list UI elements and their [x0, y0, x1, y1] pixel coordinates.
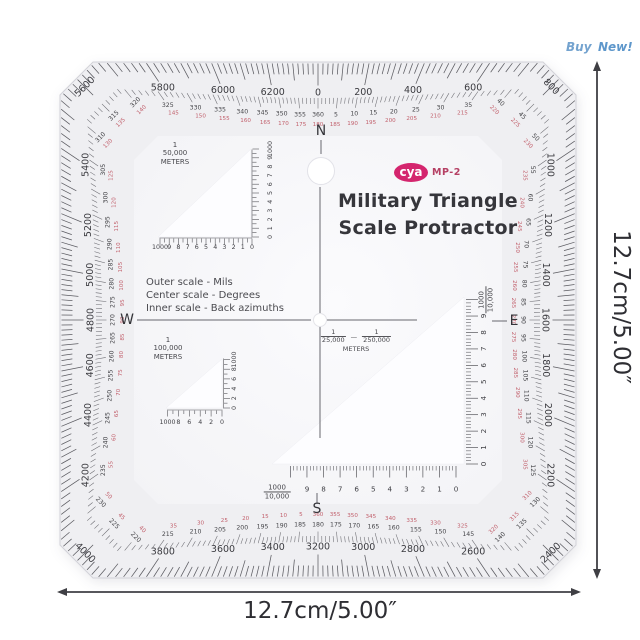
svg-text:2: 2	[231, 396, 238, 400]
svg-text:115: 115	[114, 221, 120, 232]
svg-text:8: 8	[479, 330, 488, 335]
svg-text:125: 125	[109, 170, 115, 181]
svg-text:9: 9	[167, 244, 171, 251]
scale-legend: Outer scale - Mils Center scale - Degree…	[146, 276, 284, 315]
svg-text:155: 155	[410, 526, 422, 533]
svg-text:355: 355	[330, 512, 341, 518]
frac-den: 50,000	[163, 149, 188, 157]
svg-text:4200: 4200	[80, 463, 91, 487]
svg-text:350: 350	[276, 111, 288, 118]
svg-text:5: 5	[371, 485, 376, 494]
svg-text:270: 270	[110, 314, 117, 326]
title-line-1: Military Triangle	[322, 188, 534, 215]
svg-text:100: 100	[119, 280, 125, 291]
svg-text:5200: 5200	[83, 213, 94, 237]
svg-text:75: 75	[521, 261, 528, 269]
svg-text:5800: 5800	[151, 82, 175, 93]
svg-text:340: 340	[385, 516, 396, 522]
center-hole	[314, 314, 327, 327]
svg-text:160: 160	[240, 118, 251, 124]
bottom-dimension-arrow	[57, 588, 581, 596]
svg-text:150: 150	[195, 114, 206, 120]
svg-text:5: 5	[334, 111, 338, 118]
svg-text:6: 6	[267, 182, 274, 186]
svg-text:5: 5	[204, 244, 208, 251]
svg-text:10: 10	[280, 513, 288, 519]
svg-text:2600: 2600	[461, 547, 485, 558]
svg-text:325: 325	[457, 523, 468, 529]
svg-text:65: 65	[114, 410, 120, 418]
svg-text:175: 175	[296, 122, 307, 128]
svg-text:305: 305	[100, 164, 107, 176]
svg-text:210: 210	[190, 529, 202, 536]
svg-text:2: 2	[421, 485, 426, 494]
svg-text:20: 20	[242, 516, 250, 522]
svg-text:185: 185	[294, 522, 306, 529]
svg-text:1200: 1200	[542, 213, 553, 237]
brand-logo: cya	[394, 163, 428, 182]
svg-text:195: 195	[257, 523, 269, 530]
svg-text:360: 360	[312, 112, 324, 119]
new-badge[interactable]: New!	[598, 40, 633, 54]
frac-25k: 1 25,000	[321, 329, 346, 345]
center-scale-label: 1 25,000 — 1 250,000 METERS	[321, 329, 391, 353]
svg-text:1: 1	[241, 244, 245, 251]
svg-text:55: 55	[529, 166, 536, 174]
svg-text:1: 1	[437, 485, 442, 494]
svg-text:1000: 1000	[267, 141, 274, 157]
legend-inner: Inner scale - Back azimuths	[146, 302, 284, 315]
svg-text:210: 210	[430, 114, 441, 120]
svg-text:400: 400	[404, 85, 422, 96]
svg-text:55: 55	[109, 461, 115, 469]
svg-text:2000: 2000	[542, 403, 553, 427]
svg-text:255: 255	[512, 262, 518, 273]
svg-text:345: 345	[365, 514, 376, 520]
svg-text:5400: 5400	[80, 153, 91, 177]
svg-text:235: 235	[100, 464, 107, 476]
svg-text:35: 35	[464, 102, 472, 109]
svg-text:280: 280	[109, 278, 116, 290]
svg-text:25: 25	[221, 518, 229, 524]
svg-text:0: 0	[250, 244, 254, 251]
svg-text:85: 85	[520, 298, 527, 306]
svg-text:240: 240	[102, 436, 109, 448]
svg-text:3: 3	[222, 244, 226, 251]
svg-text:110: 110	[116, 242, 122, 253]
svg-text:355: 355	[294, 111, 306, 118]
svg-text:160: 160	[388, 525, 400, 532]
svg-text:285: 285	[108, 259, 115, 271]
svg-text:200: 200	[354, 87, 372, 98]
svg-text:155: 155	[219, 116, 230, 122]
svg-text:340: 340	[236, 108, 248, 115]
height-dimension-label: 12.7cm/5.00″	[608, 230, 634, 384]
svg-text:250: 250	[514, 242, 520, 253]
svg-text:0: 0	[220, 419, 224, 426]
svg-text:2: 2	[267, 217, 274, 221]
product-photo: 0200400600800100012001400160018002000220…	[0, 0, 640, 640]
svg-text:1000: 1000	[159, 419, 175, 426]
buy-link[interactable]: Buy	[566, 40, 592, 54]
svg-text:75: 75	[118, 369, 124, 377]
svg-text:6: 6	[231, 377, 238, 381]
frac-den: 25,000	[321, 336, 346, 344]
svg-text:1000: 1000	[545, 153, 556, 177]
svg-text:295: 295	[105, 216, 112, 228]
svg-text:0: 0	[479, 461, 488, 466]
svg-text:1600: 1600	[540, 308, 551, 332]
svg-text:260: 260	[511, 280, 517, 291]
svg-text:95: 95	[520, 334, 527, 342]
triangle-100k-label: 1 100,000 METERS	[154, 336, 183, 361]
svg-text:0: 0	[315, 88, 321, 99]
triangle-50k-label: 1 50,000 METERS	[161, 141, 189, 166]
svg-text:290: 290	[106, 238, 113, 250]
center-scale-unit: METERS	[343, 345, 369, 353]
svg-text:7: 7	[338, 485, 343, 494]
svg-text:2: 2	[209, 419, 213, 426]
svg-text:145: 145	[462, 531, 474, 538]
svg-text:6: 6	[479, 363, 488, 368]
svg-text:2: 2	[232, 244, 236, 251]
model-number: MP-2	[432, 167, 461, 178]
svg-text:1000: 1000	[152, 244, 168, 251]
svg-text:3600: 3600	[211, 544, 235, 555]
right-dimension-arrow	[593, 61, 601, 579]
svg-text:60: 60	[112, 433, 118, 441]
svg-text:1800: 1800	[540, 353, 551, 377]
svg-text:275: 275	[109, 296, 116, 308]
svg-text:4: 4	[267, 200, 274, 204]
width-dimension-label: 12.7cm/5.00″	[243, 598, 397, 624]
svg-text:1000: 1000	[231, 351, 238, 367]
svg-text:3: 3	[479, 412, 488, 417]
svg-text:90: 90	[520, 316, 527, 324]
svg-text:105: 105	[118, 261, 124, 272]
svg-text:7: 7	[267, 173, 274, 177]
svg-text:7: 7	[479, 347, 488, 352]
svg-text:4400: 4400	[83, 403, 94, 427]
svg-text:250: 250	[106, 390, 113, 402]
svg-text:0: 0	[231, 406, 238, 410]
svg-text:20: 20	[390, 108, 398, 115]
svg-text:4: 4	[479, 395, 488, 400]
svg-text:600: 600	[464, 82, 482, 93]
svg-text:4: 4	[388, 485, 393, 494]
svg-text:295: 295	[516, 408, 522, 419]
svg-text:115: 115	[524, 412, 531, 424]
svg-text:165: 165	[368, 523, 380, 530]
compass-south: S	[313, 501, 322, 517]
frac-den: 10,000	[486, 287, 495, 314]
triangle-10k-side-label: 1000 10,000	[477, 287, 494, 314]
svg-text:6000: 6000	[211, 85, 235, 96]
protractor-graphic: 0200400600800100012001400160018002000220…	[0, 0, 640, 640]
svg-text:2: 2	[479, 429, 488, 434]
svg-text:120: 120	[112, 197, 118, 208]
triangle-10k-bottom-label: 1000 10,000	[264, 483, 291, 500]
svg-text:10: 10	[350, 111, 358, 118]
svg-text:165: 165	[260, 120, 271, 126]
svg-text:110: 110	[523, 390, 530, 402]
svg-text:8: 8	[321, 485, 326, 494]
svg-text:150: 150	[435, 529, 447, 536]
svg-text:235: 235	[521, 170, 527, 181]
brand-name: cya	[399, 163, 422, 182]
svg-text:6: 6	[187, 419, 191, 426]
svg-text:185: 185	[330, 122, 341, 128]
frac-den: 100,000	[154, 344, 183, 352]
svg-text:260: 260	[109, 350, 116, 362]
frac-num: 1000	[477, 291, 485, 309]
frac-unit: METERS	[161, 158, 189, 166]
svg-text:280: 280	[511, 349, 517, 360]
frac-den: 10,000	[264, 492, 291, 501]
svg-text:335: 335	[406, 518, 417, 524]
svg-text:4600: 4600	[85, 353, 96, 377]
svg-text:190: 190	[347, 121, 358, 127]
svg-text:335: 335	[214, 107, 226, 114]
frac-num: 1	[375, 329, 379, 336]
svg-text:290: 290	[514, 387, 520, 398]
svg-text:100: 100	[520, 350, 527, 362]
svg-text:345: 345	[257, 110, 269, 117]
svg-text:5000: 5000	[85, 263, 96, 287]
svg-text:2800: 2800	[401, 544, 425, 555]
svg-text:125: 125	[529, 464, 536, 476]
svg-text:265: 265	[109, 332, 116, 344]
svg-text:120: 120	[527, 437, 534, 449]
frac-den: 250,000	[362, 336, 391, 344]
svg-text:265: 265	[510, 298, 516, 309]
svg-text:30: 30	[197, 520, 205, 526]
svg-text:3800: 3800	[151, 547, 175, 558]
frac-num: 1	[173, 141, 177, 149]
svg-text:300: 300	[518, 432, 524, 443]
svg-text:245: 245	[105, 412, 112, 424]
svg-text:2200: 2200	[545, 463, 556, 487]
svg-text:305: 305	[521, 459, 527, 470]
svg-text:80: 80	[119, 351, 125, 359]
hanging-hole	[308, 158, 335, 185]
svg-text:15: 15	[369, 110, 377, 117]
title-line-2: Scale Protractor	[322, 215, 534, 242]
svg-text:350: 350	[347, 513, 358, 519]
svg-text:3400: 3400	[261, 542, 285, 553]
dash: —	[351, 333, 358, 341]
svg-text:6: 6	[354, 485, 359, 494]
svg-text:5: 5	[299, 512, 303, 518]
svg-text:6200: 6200	[261, 87, 285, 98]
svg-text:35: 35	[170, 523, 178, 529]
svg-text:205: 205	[406, 116, 417, 122]
svg-text:330: 330	[190, 104, 202, 111]
frac-num: 1000	[268, 483, 286, 491]
svg-text:4: 4	[231, 387, 238, 391]
svg-text:1: 1	[267, 226, 274, 230]
svg-text:170: 170	[348, 522, 360, 529]
svg-text:300: 300	[102, 192, 109, 204]
svg-text:3: 3	[267, 209, 274, 213]
svg-text:30: 30	[437, 104, 445, 111]
svg-text:85: 85	[120, 333, 126, 341]
svg-text:70: 70	[116, 388, 122, 396]
svg-text:1: 1	[479, 445, 488, 450]
frac-unit: METERS	[154, 353, 182, 361]
svg-text:15: 15	[262, 514, 270, 520]
legend-outer: Outer scale - Mils	[146, 276, 284, 289]
svg-text:195: 195	[365, 120, 376, 126]
frac-250k: 1 250,000	[362, 329, 391, 345]
frac-num: 1	[331, 329, 335, 336]
svg-text:5: 5	[267, 191, 274, 195]
svg-text:7: 7	[186, 244, 190, 251]
svg-text:275: 275	[510, 332, 516, 343]
svg-text:4: 4	[198, 419, 202, 426]
svg-text:200: 200	[236, 525, 248, 532]
svg-text:8: 8	[267, 165, 274, 169]
svg-text:325: 325	[162, 102, 174, 109]
svg-text:95: 95	[120, 299, 126, 307]
product-title: Military Triangle Scale Protractor	[322, 188, 534, 242]
svg-text:5: 5	[479, 379, 488, 384]
svg-text:3200: 3200	[306, 542, 330, 553]
svg-text:190: 190	[276, 522, 288, 529]
svg-text:9: 9	[479, 313, 488, 318]
frac-num: 1	[166, 336, 170, 344]
svg-text:0: 0	[267, 235, 274, 239]
svg-text:3: 3	[404, 485, 409, 494]
svg-text:330: 330	[430, 520, 441, 526]
svg-text:175: 175	[330, 522, 342, 529]
svg-text:285: 285	[512, 367, 518, 378]
svg-text:3000: 3000	[351, 542, 375, 553]
svg-text:215: 215	[457, 111, 468, 117]
compass-east: E	[510, 313, 519, 329]
svg-text:80: 80	[520, 280, 527, 288]
svg-text:215: 215	[162, 531, 174, 538]
svg-text:9: 9	[305, 485, 310, 494]
svg-text:8: 8	[176, 244, 180, 251]
svg-text:1400: 1400	[540, 263, 551, 287]
svg-text:0: 0	[454, 485, 459, 494]
svg-text:255: 255	[108, 369, 115, 381]
compass-north: N	[316, 123, 326, 139]
svg-text:200: 200	[385, 118, 396, 124]
svg-text:4800: 4800	[86, 308, 97, 332]
svg-text:205: 205	[214, 526, 226, 533]
legend-center: Center scale - Degrees	[146, 289, 284, 302]
svg-text:105: 105	[521, 370, 528, 382]
svg-text:170: 170	[278, 121, 289, 127]
svg-text:25: 25	[412, 107, 420, 114]
svg-text:8: 8	[176, 419, 180, 426]
compass-west: W	[120, 312, 134, 328]
svg-text:145: 145	[168, 111, 179, 117]
svg-text:6: 6	[195, 244, 199, 251]
svg-text:4: 4	[213, 244, 217, 251]
svg-text:180: 180	[312, 522, 324, 529]
